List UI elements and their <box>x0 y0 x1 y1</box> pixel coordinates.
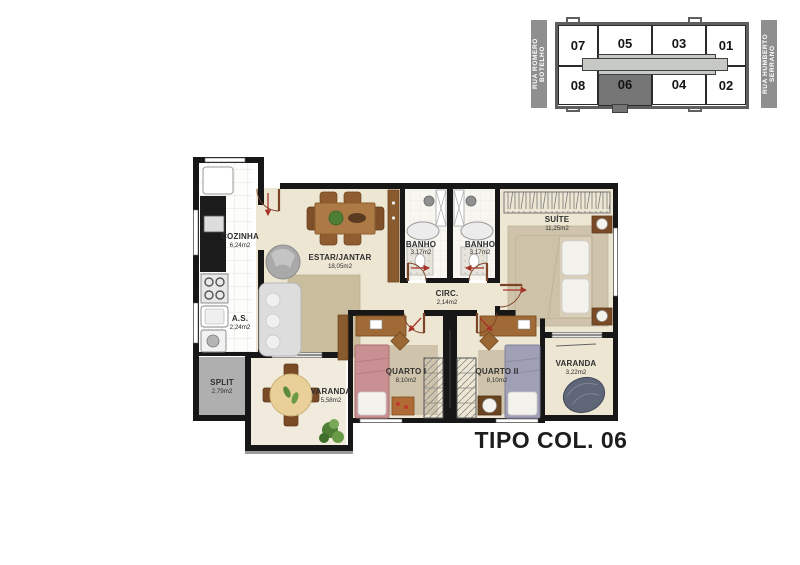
plan-title: TIPO COL. 06 <box>466 427 636 454</box>
bathroom-sink <box>407 222 439 240</box>
room-area-banho-1: 3,17m2 <box>411 249 432 256</box>
sofa <box>259 283 301 356</box>
room-label-estar: ESTAR/JANTAR <box>309 253 372 262</box>
round-table <box>270 374 312 416</box>
window-kitchen-top <box>205 158 245 162</box>
room-label-cozinha: COZINHA <box>221 232 259 241</box>
floor-plan: COZINHA 6,24m2 A.S. 2,24m2 SPLIT 2,79m2 … <box>0 0 800 565</box>
laptop <box>370 320 382 329</box>
nightstand <box>592 308 612 325</box>
window-quarto-2 <box>496 419 538 423</box>
oven <box>204 216 224 232</box>
single-bed-1 <box>355 345 389 418</box>
room-area-banho-2: 3,17m2 <box>470 249 491 256</box>
window-as-left <box>194 303 199 343</box>
window-suite-right <box>614 228 618 296</box>
laundry-sink <box>201 306 228 327</box>
nightstand <box>592 216 612 233</box>
armchair <box>266 245 300 279</box>
room-label-quarto-1: QUARTO I <box>386 367 427 376</box>
room-area-cozinha: 6,24m2 <box>230 242 251 249</box>
room-area-split: 2,79m2 <box>212 388 233 395</box>
sideboard-knob <box>392 201 395 204</box>
table-centerpiece <box>329 211 343 225</box>
table-tray <box>348 213 366 223</box>
room-area-quarto-2: 8,10m2 <box>487 377 508 384</box>
room-label-banho-1: BANHO <box>406 240 436 249</box>
room-label-as: A.S. <box>232 314 248 323</box>
double-bed <box>516 236 592 318</box>
dining-table <box>315 203 375 234</box>
nightstand <box>392 397 414 415</box>
room-area-varanda-2: 3,22m2 <box>566 369 587 376</box>
window-quarto-1 <box>360 419 402 423</box>
room-label-banho-2: BANHO <box>465 240 495 249</box>
dining-chair <box>320 233 337 245</box>
nightstand <box>478 396 501 415</box>
room-label-circ: CIRC. <box>436 289 459 298</box>
bathroom-sink <box>461 222 493 240</box>
fridge <box>203 167 233 194</box>
shower-head <box>466 196 476 206</box>
sliding-door-varanda-right <box>552 333 602 338</box>
washing-machine <box>201 330 226 352</box>
dining-chair <box>320 192 337 204</box>
balcony-rail <box>245 451 353 454</box>
sideboard-knob <box>392 216 395 219</box>
laptop <box>518 320 530 329</box>
dining-chair <box>344 192 361 204</box>
room-label-split: SPLIT <box>210 378 234 387</box>
room-area-varanda-1: 5,58m2 <box>321 397 342 404</box>
room-label-varanda-1: VARANDA <box>311 387 352 396</box>
floor-circ <box>348 283 500 313</box>
room-label-varanda-2: VARANDA <box>556 359 597 368</box>
room-area-circ: 2,14m2 <box>437 299 458 306</box>
shelf-unit <box>338 315 348 360</box>
room-area-estar: 18,05m2 <box>328 263 353 270</box>
room-label-suite: SUÍTE <box>545 215 570 224</box>
page: RUA ROMERO BOTELHO RUA HUMBERTO SERRANO … <box>0 0 800 565</box>
room-area-quarto-1: 8,10m2 <box>396 377 417 384</box>
room-area-suite: 11,25m2 <box>545 225 569 232</box>
room-area-as: 2,24m2 <box>230 324 251 331</box>
dining-chair <box>344 233 361 245</box>
shower-head <box>424 196 434 206</box>
wardrobe <box>504 192 610 213</box>
stove <box>201 274 228 303</box>
room-label-quarto-2: QUARTO II <box>476 367 519 376</box>
single-bed-2 <box>505 345 540 418</box>
window-kitchen-left <box>194 210 199 255</box>
